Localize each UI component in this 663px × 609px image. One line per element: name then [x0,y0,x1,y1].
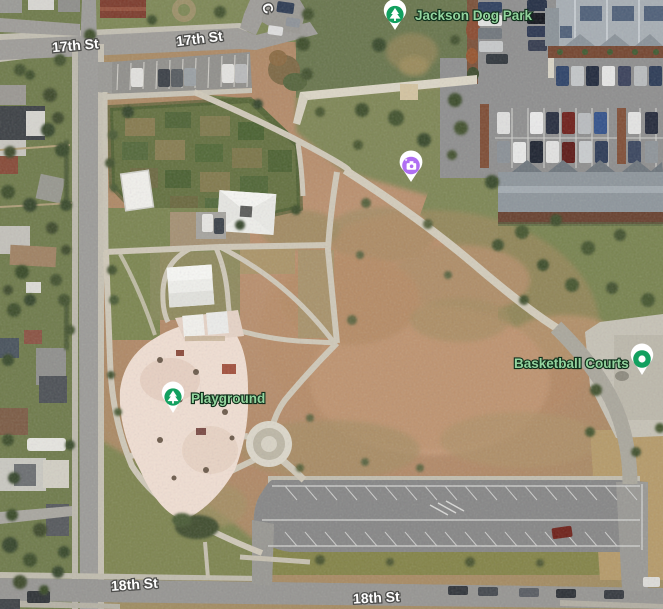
svg-text:18th St: 18th St [111,575,159,594]
svg-text:18th St: 18th St [353,588,401,606]
svg-text:Jackson Dog Park: Jackson Dog Park [415,8,533,23]
svg-text:Playground: Playground [191,391,265,406]
svg-text:Basketball Courts: Basketball Courts [514,356,629,371]
